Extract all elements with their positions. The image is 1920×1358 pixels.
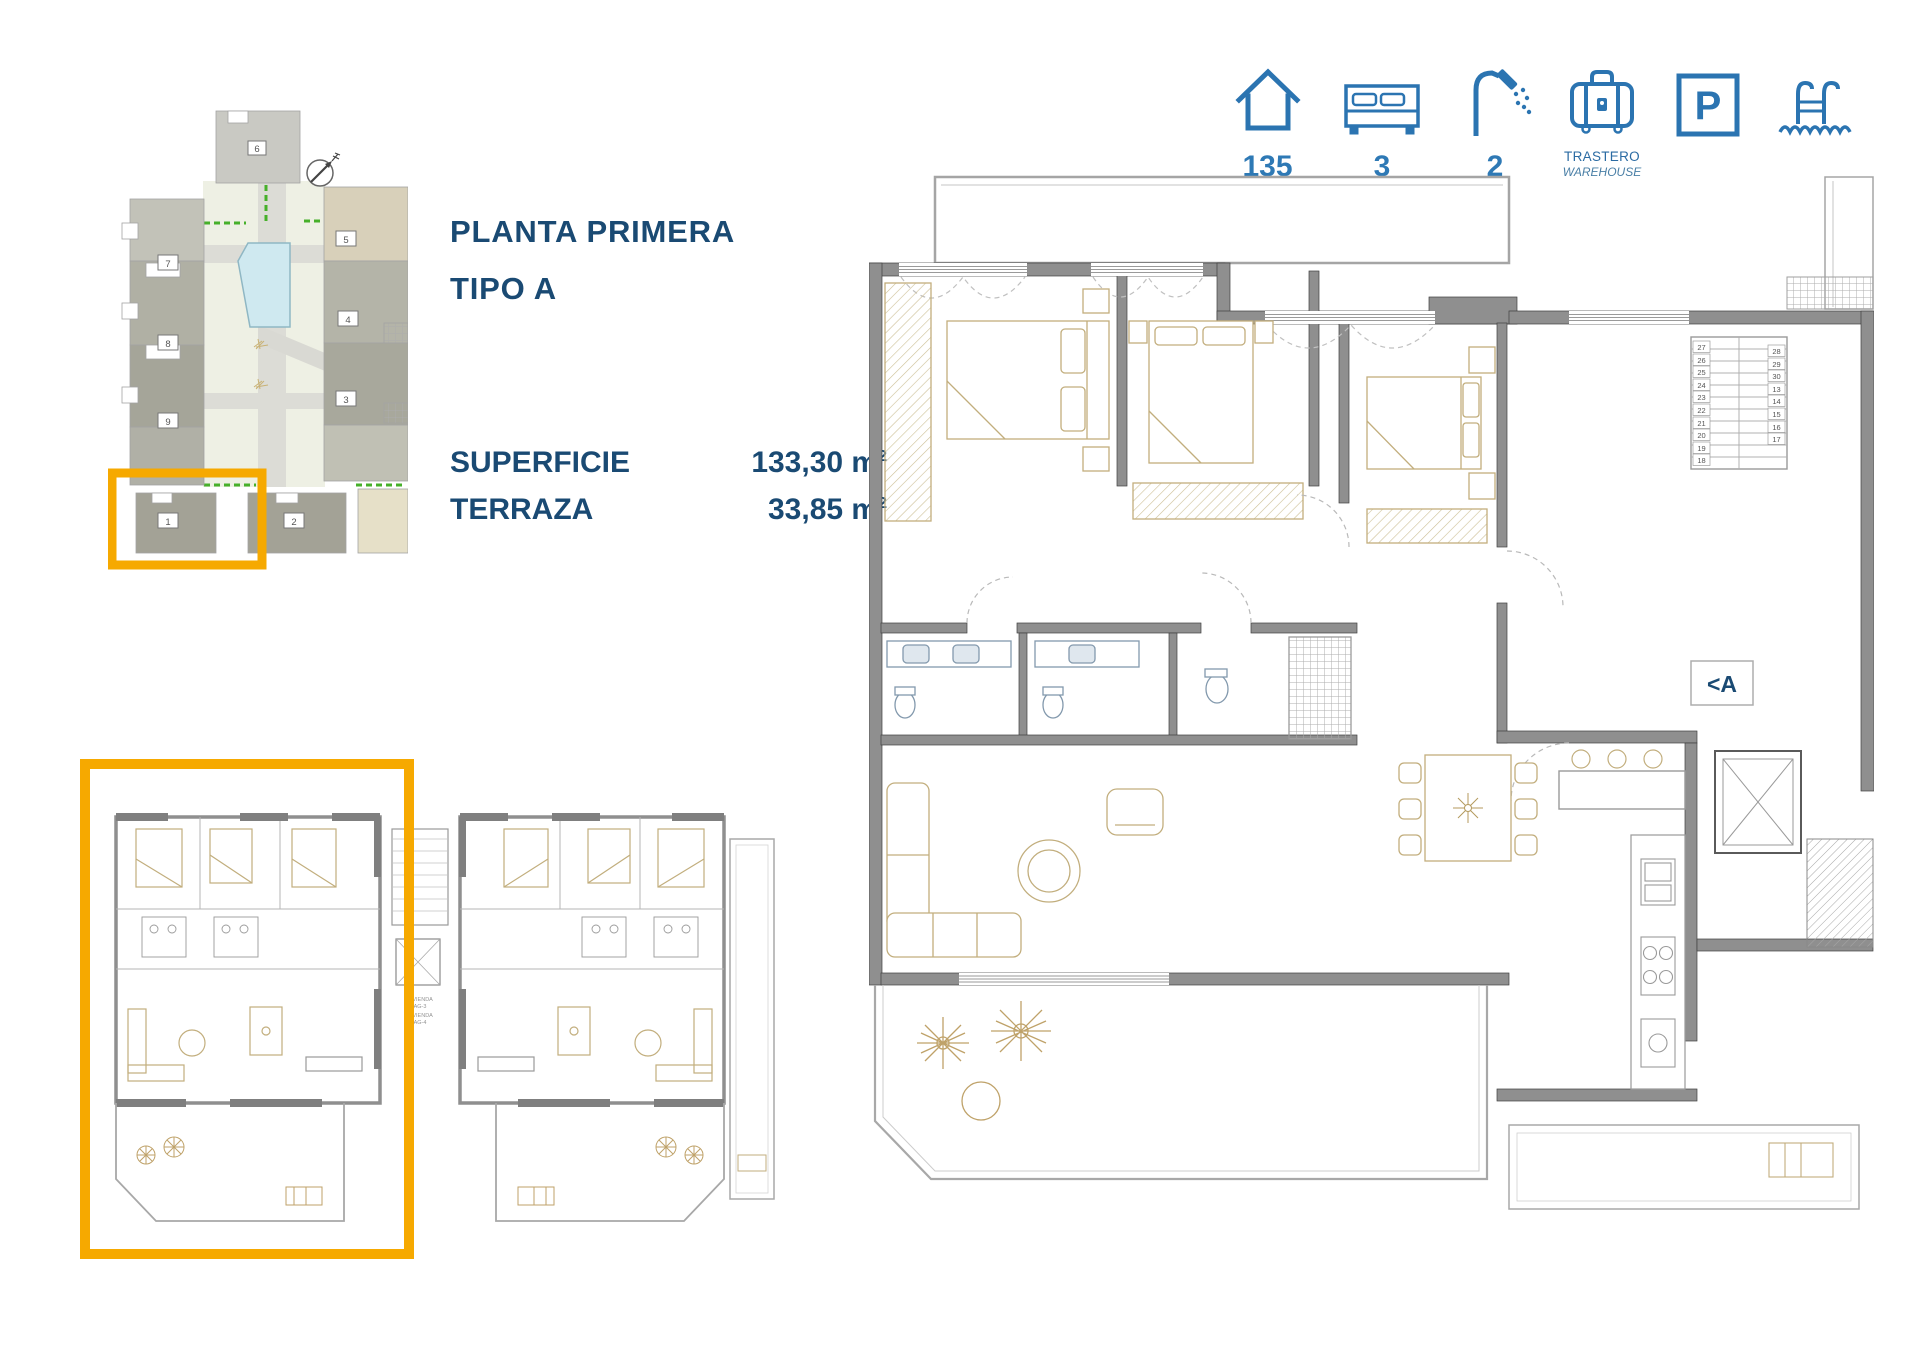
- svg-text:21: 21: [1697, 419, 1705, 428]
- bottom-terrace: [875, 985, 1859, 1209]
- kitchen: [1559, 750, 1685, 1089]
- parking-icon: P: [1673, 70, 1743, 140]
- svg-text:14: 14: [1772, 397, 1780, 406]
- elevator: [1715, 751, 1873, 947]
- site-plan-thumbnail: 6 7 8 9 5 4 3 1 2: [108, 95, 408, 575]
- stat-row-terraza: TERRAZA 33,85 m2: [450, 493, 887, 527]
- page-title: PLANTA PRIMERA: [450, 214, 735, 250]
- site-label-6: 6: [254, 144, 259, 155]
- site-label-7: 7: [165, 259, 170, 270]
- stat-row-superficie: SUPERFICIE 133,30 m2: [450, 446, 887, 480]
- pool-icon: [1774, 74, 1858, 140]
- staircase: 27 26 25 24 23 22 21 20 19 18 28 29 30 1…: [1691, 337, 1787, 469]
- site-label-8: 8: [165, 339, 170, 350]
- site-label-1: 1: [165, 517, 170, 528]
- stat-label: TERRAZA: [450, 493, 593, 527]
- storage-label-es: TRASTERO: [1564, 149, 1640, 164]
- bedroom-3: [1367, 347, 1495, 543]
- stat-label: SUPERFICIE: [450, 446, 630, 480]
- section-label: <A: [1707, 671, 1737, 697]
- terrace-plants: [917, 1001, 1051, 1120]
- bedroom-2: [1129, 321, 1303, 519]
- svg-text:28: 28: [1772, 347, 1780, 356]
- house-icon: [1232, 62, 1304, 140]
- shower-icon: [1458, 62, 1532, 140]
- amenity-pool: [1761, 52, 1871, 140]
- amenity-surface: 135: [1212, 52, 1323, 184]
- site-label-9: 9: [165, 417, 170, 428]
- svg-text:29: 29: [1772, 360, 1780, 369]
- stat-value: 133,30 m2: [751, 446, 887, 480]
- duplex-terrace: [116, 1103, 344, 1221]
- amenity-bedrooms: 3: [1323, 52, 1441, 184]
- svg-text:18: 18: [1697, 456, 1705, 465]
- amenities-row: 135 3 2: [1212, 52, 1871, 184]
- bedroom-1: [885, 283, 1109, 521]
- svg-text:25: 25: [1697, 368, 1705, 377]
- svg-text:15: 15: [1772, 410, 1780, 419]
- duplex-unit: [116, 813, 381, 1221]
- svg-text:AG-3: AG-3: [414, 1004, 427, 1010]
- living-room: [887, 783, 1163, 957]
- svg-text:27: 27: [1697, 343, 1705, 352]
- svg-text:AG-4: AG-4: [414, 1020, 427, 1026]
- duplex-right-balcony: [730, 839, 774, 1199]
- dining-area: [1399, 755, 1537, 861]
- svg-text:30: 30: [1772, 372, 1780, 381]
- svg-text:22: 22: [1697, 406, 1705, 415]
- bed-icon: [1339, 74, 1425, 140]
- parking-glyph: P: [1695, 84, 1722, 128]
- bathrooms: [887, 637, 1351, 739]
- amenity-bathrooms: 2: [1441, 52, 1549, 184]
- title-block: PLANTA PRIMERA TIPO A: [450, 214, 735, 307]
- amenity-storage: TRASTERO WAREHOUSE: [1549, 52, 1655, 179]
- svg-text:13: 13: [1772, 385, 1780, 394]
- amenity-parking: P: [1655, 52, 1761, 140]
- compass-icon: [307, 153, 340, 186]
- page-subtitle: TIPO A: [450, 271, 735, 307]
- main-floor-plan: 27 26 25 24 23 22 21 20 19 18 28 29 30 1…: [869, 171, 1874, 1273]
- svg-text:20: 20: [1697, 431, 1705, 440]
- svg-text:23: 23: [1697, 393, 1705, 402]
- site-label-3: 3: [343, 395, 348, 406]
- site-label-2: 2: [291, 517, 296, 528]
- site-courtyard: [203, 181, 325, 487]
- svg-text:19: 19: [1697, 444, 1705, 453]
- top-terrace: [935, 177, 1873, 309]
- svg-text:16: 16: [1772, 423, 1780, 432]
- site-label-4: 4: [345, 315, 350, 326]
- stats-block: SUPERFICIE 133,30 m2 TERRAZA 33,85 m2: [450, 446, 887, 540]
- svg-text:17: 17: [1772, 435, 1780, 444]
- section-marker: <A: [1691, 661, 1753, 705]
- duplex-key-plan: VIVIENDA AG-3 VIVIENDA AG-4: [80, 759, 790, 1261]
- svg-text:24: 24: [1697, 381, 1705, 390]
- site-label-5: 5: [343, 235, 348, 246]
- svg-text:26: 26: [1697, 356, 1705, 365]
- duplex-core: VIVIENDA AG-3 VIVIENDA AG-4: [392, 829, 448, 1026]
- storage-icon: [1563, 62, 1641, 140]
